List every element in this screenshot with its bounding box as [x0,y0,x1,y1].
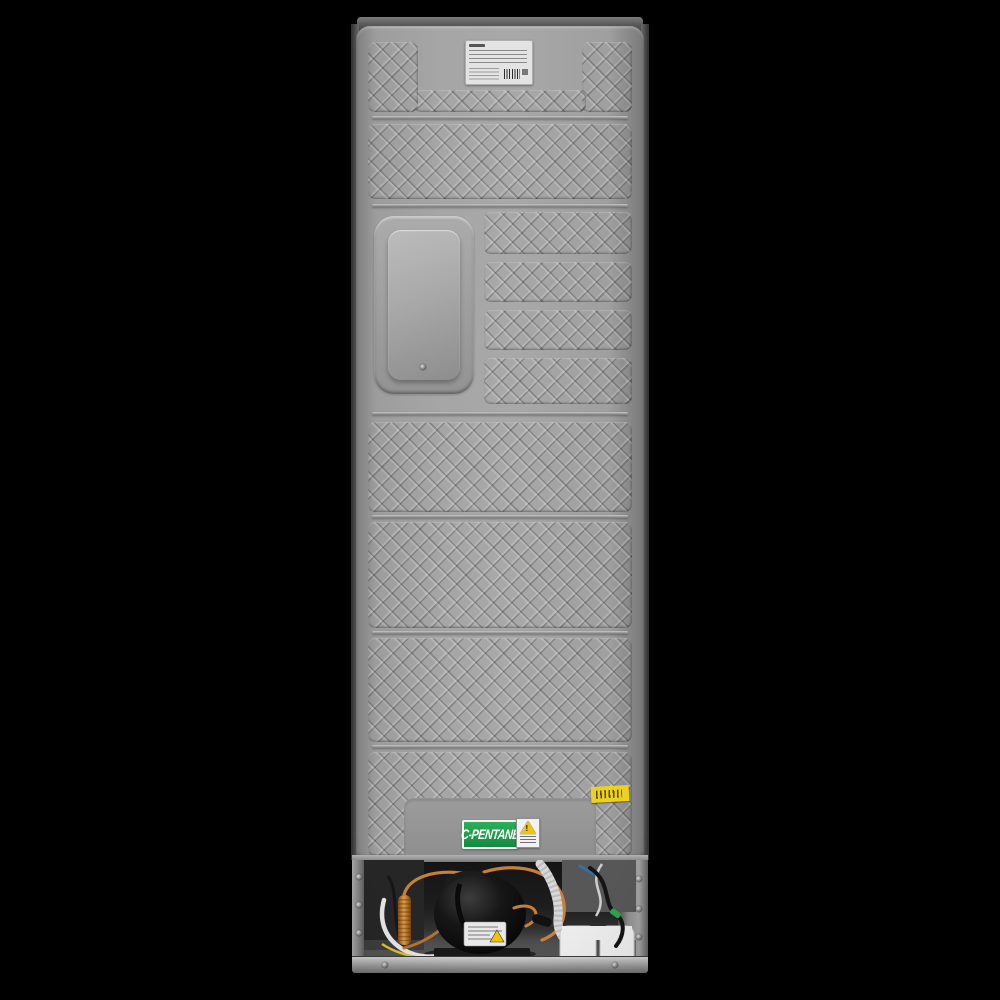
yellow-barcode-sticker [591,785,630,803]
rating-plate [465,40,533,85]
label-text-lines [469,50,527,66]
label-mark [522,69,528,75]
texture-band [484,358,632,404]
flammable-warning-sticker: ! [516,818,540,848]
screw [356,902,362,908]
panel-seam [372,745,628,748]
screw [636,934,642,940]
texture-band [484,310,632,350]
texture-band [582,42,632,112]
screw [612,962,618,968]
bay-bottom-rail [352,956,648,973]
panel-seam [372,204,628,207]
texture-band [368,422,632,512]
texture-band [368,638,632,742]
screw [356,874,362,880]
warning-triangle-icon: ! [520,821,536,834]
texture-band [484,262,632,302]
texture-band [368,124,632,199]
screw [382,962,388,968]
hose-fitting [531,913,553,928]
exclamation-glyph: ! [526,824,529,834]
fine-print-lines [520,836,536,844]
label-text-lines [469,68,499,80]
barcode [596,789,622,798]
machine-bay-graphic [364,860,636,960]
product-photo: C-PENTANE ! [0,0,1000,1000]
texture-band [368,522,632,628]
screw [420,364,426,370]
c-pentane-text: C-PENTANE [460,827,520,842]
compressor-label [464,922,506,946]
panel-seam [372,631,628,634]
screw [636,876,642,882]
access-cover [388,230,460,380]
screw [356,930,362,936]
panel-seam [372,515,628,518]
texture-band [368,42,418,112]
texture-band [414,90,586,112]
screw [636,906,642,912]
barcode [504,69,520,79]
c-pentane-label: C-PENTANE [462,820,518,849]
brand-logo [469,44,485,47]
panel-seam [372,412,628,415]
texture-band [484,212,632,254]
panel-seam [372,116,628,119]
